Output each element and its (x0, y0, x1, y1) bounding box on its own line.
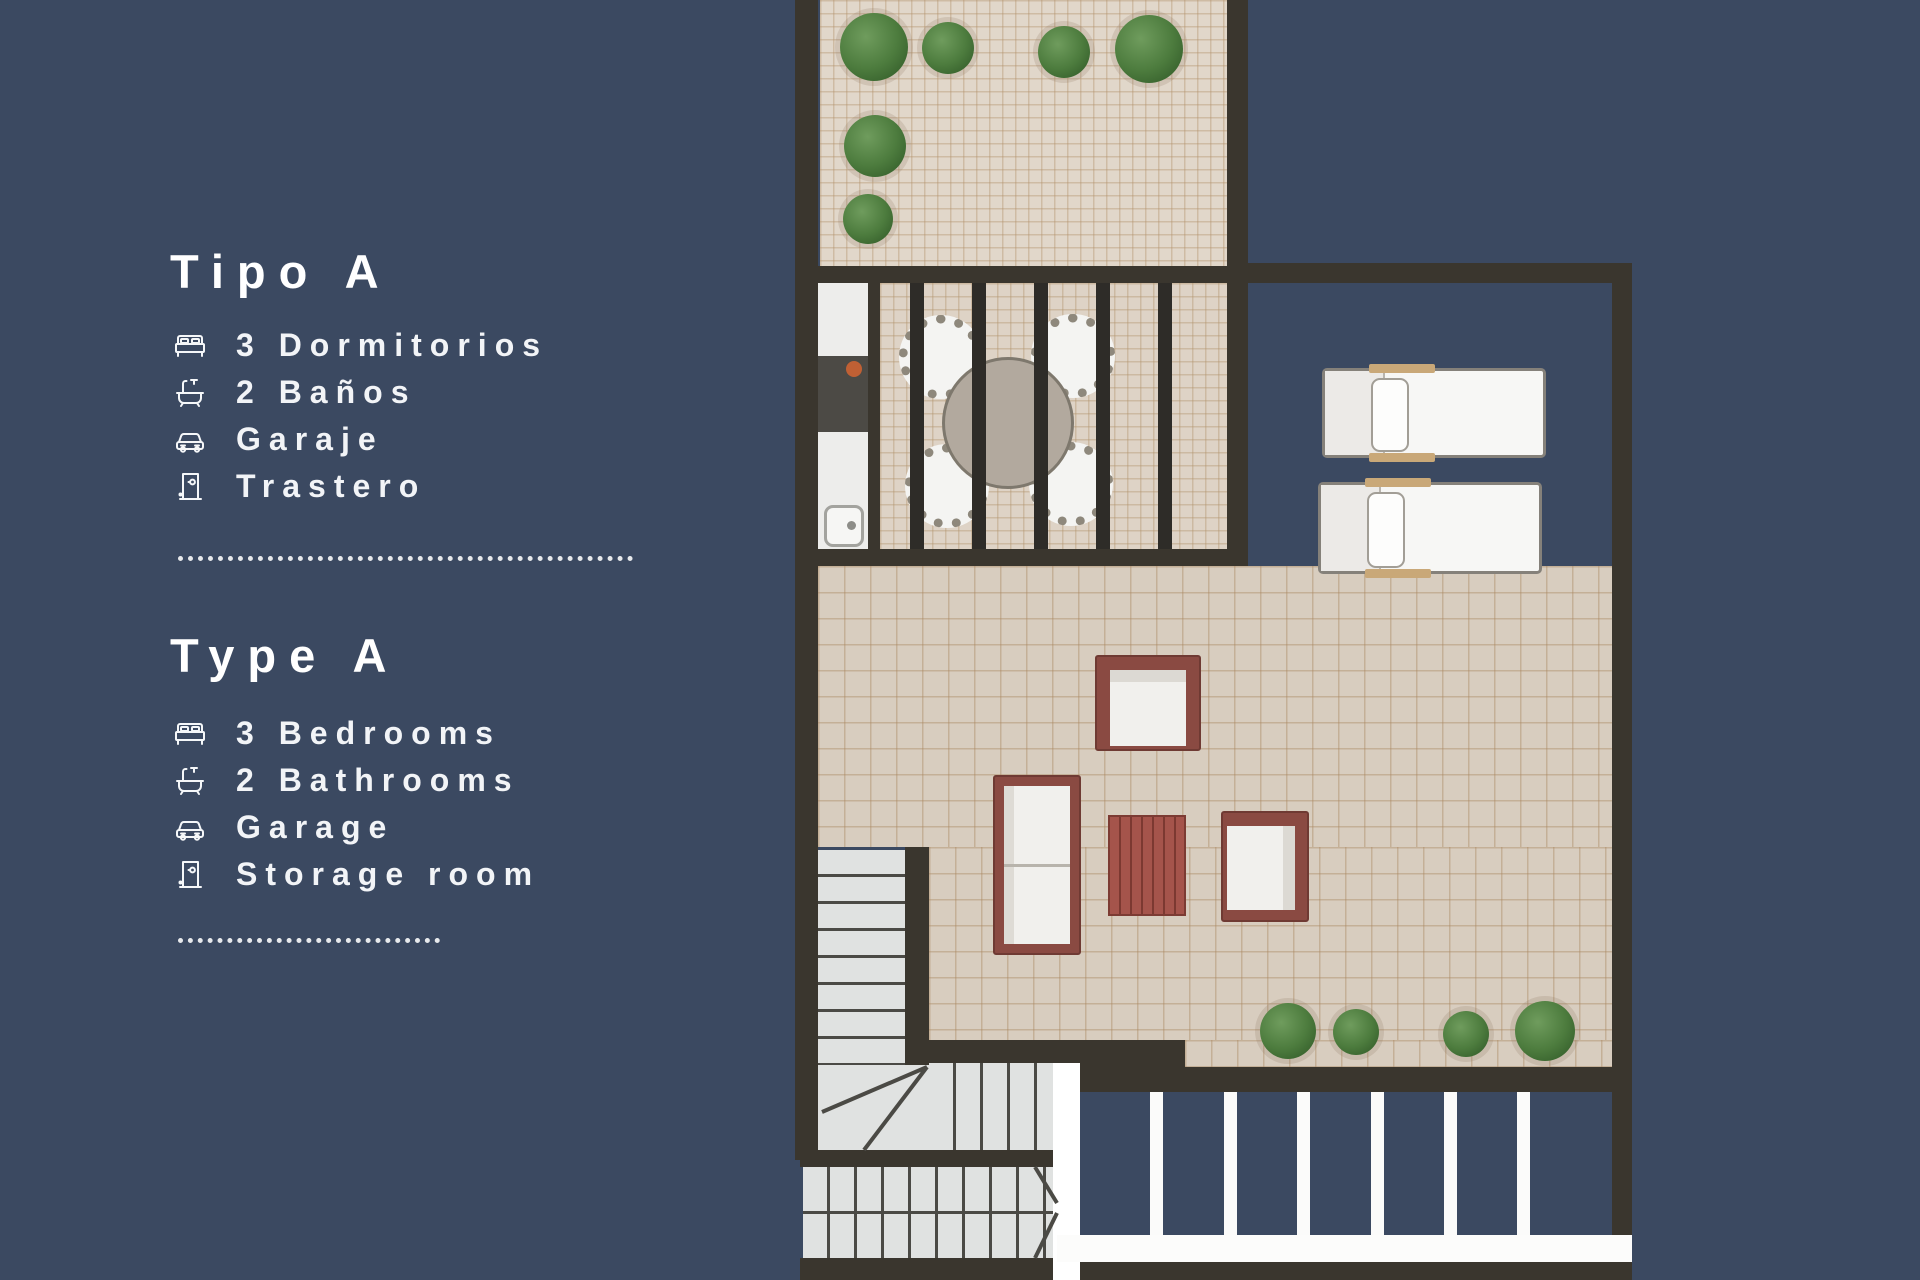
stair-winder-lines (0, 0, 1920, 1280)
brochure-page: Tipo A 3 Dormitorios 2 Baños Garaje (0, 0, 1920, 1280)
floor-plan (0, 0, 1920, 1280)
